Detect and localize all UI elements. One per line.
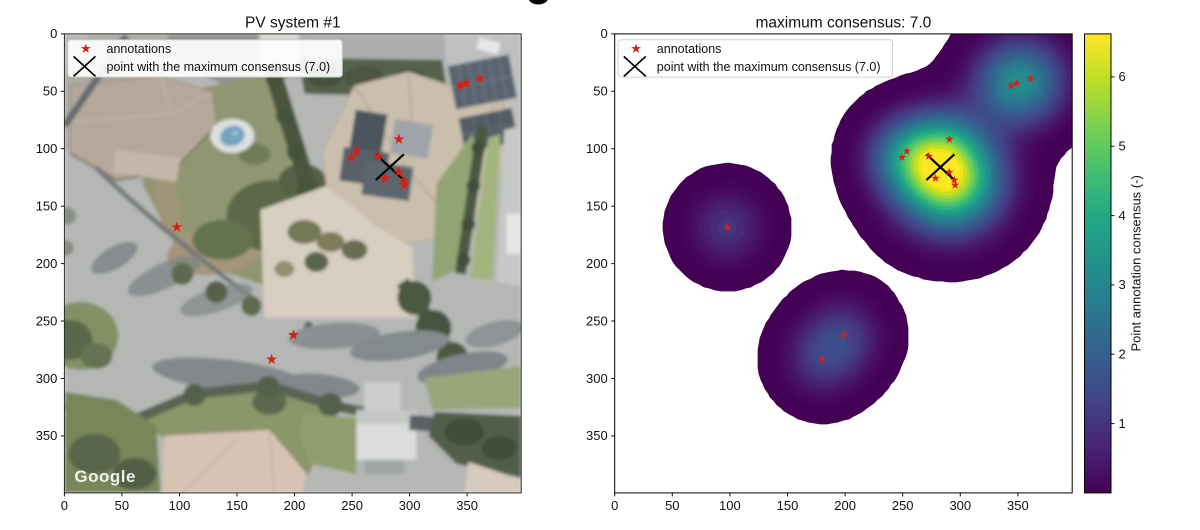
svg-text:250: 250 xyxy=(341,498,363,513)
svg-text:1: 1 xyxy=(1119,416,1126,431)
svg-text:0: 0 xyxy=(611,498,618,513)
svg-text:350: 350 xyxy=(1007,498,1029,513)
svg-text:Point annotation consensus (-): Point annotation consensus (-) xyxy=(1129,175,1144,351)
svg-text:5: 5 xyxy=(1119,139,1126,154)
svg-text:0: 0 xyxy=(61,498,68,513)
svg-text:350: 350 xyxy=(36,428,58,443)
svg-text:200: 200 xyxy=(586,256,608,271)
svg-text:0: 0 xyxy=(600,26,607,41)
svg-text:point with the maximum consens: point with the maximum consensus (7.0) xyxy=(657,60,881,74)
svg-text:200: 200 xyxy=(36,256,58,271)
svg-text:100: 100 xyxy=(169,498,191,513)
svg-text:maximum consensus: 7.0: maximum consensus: 7.0 xyxy=(756,15,932,32)
svg-text:50: 50 xyxy=(593,84,607,99)
svg-text:300: 300 xyxy=(36,371,58,386)
svg-text:2: 2 xyxy=(1119,347,1126,362)
svg-text:300: 300 xyxy=(586,371,608,386)
svg-text:250: 250 xyxy=(892,498,914,513)
svg-text:PV system #1: PV system #1 xyxy=(245,15,341,32)
svg-text:100: 100 xyxy=(586,141,608,156)
svg-text:150: 150 xyxy=(36,199,58,214)
svg-text:Google: Google xyxy=(74,467,136,486)
svg-text:annotations: annotations xyxy=(657,42,722,56)
svg-text:point with the maximum consens: point with the maximum consensus (7.0) xyxy=(107,60,331,74)
svg-text:50: 50 xyxy=(115,498,129,513)
svg-text:200: 200 xyxy=(284,498,306,513)
svg-text:50: 50 xyxy=(665,498,679,513)
svg-text:150: 150 xyxy=(777,498,799,513)
svg-text:350: 350 xyxy=(456,498,478,513)
svg-text:150: 150 xyxy=(226,498,248,513)
svg-text:300: 300 xyxy=(399,498,421,513)
svg-text:100: 100 xyxy=(36,141,58,156)
svg-text:250: 250 xyxy=(36,313,58,328)
svg-text:50: 50 xyxy=(43,84,57,99)
svg-text:350: 350 xyxy=(586,428,608,443)
svg-text:6: 6 xyxy=(1119,69,1126,84)
svg-text:150: 150 xyxy=(586,199,608,214)
svg-text:0: 0 xyxy=(50,26,57,41)
svg-text:250: 250 xyxy=(586,313,608,328)
svg-text:100: 100 xyxy=(719,498,741,513)
svg-text:200: 200 xyxy=(834,498,856,513)
svg-text:annotations: annotations xyxy=(107,42,172,56)
svg-text:4: 4 xyxy=(1119,208,1126,223)
svg-text:3: 3 xyxy=(1119,277,1126,292)
svg-text:300: 300 xyxy=(949,498,971,513)
